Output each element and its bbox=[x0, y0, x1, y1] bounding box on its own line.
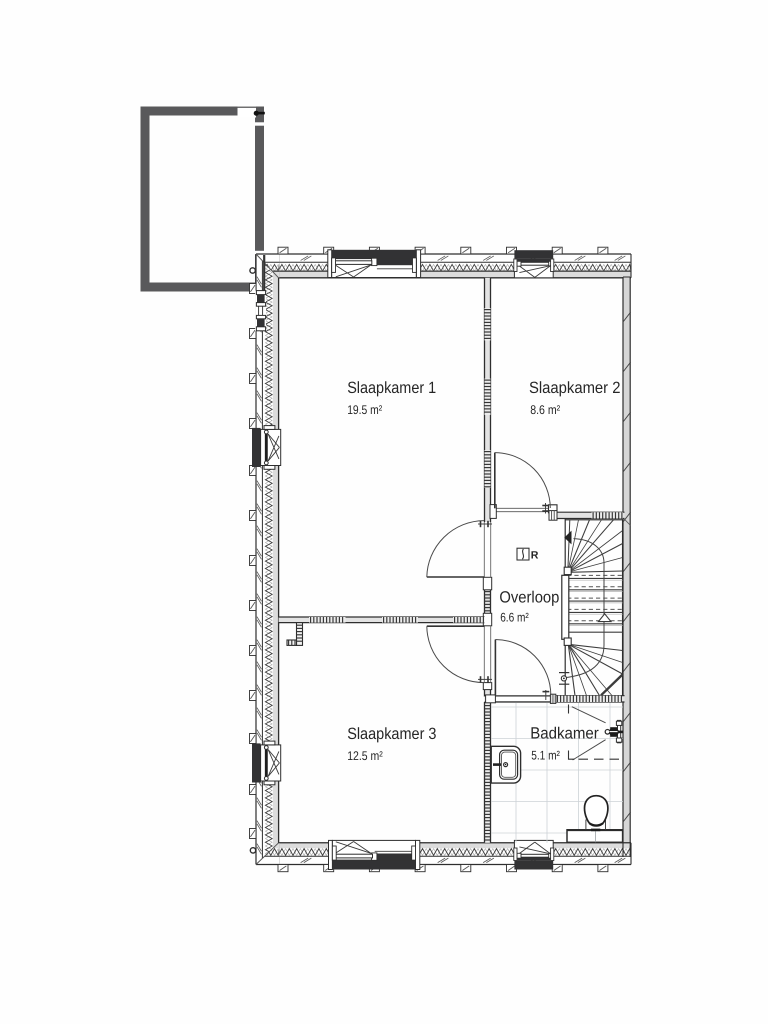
svg-text:12.5 m²: 12.5 m² bbox=[347, 749, 383, 763]
svg-text:Slaapkamer 3: Slaapkamer 3 bbox=[347, 725, 436, 743]
svg-text:Slaapkamer 1: Slaapkamer 1 bbox=[347, 379, 436, 397]
svg-text:Badkamer: Badkamer bbox=[530, 724, 599, 742]
svg-text:R: R bbox=[531, 549, 539, 561]
svg-text:Overloop: Overloop bbox=[499, 588, 559, 606]
svg-text:6.6 m²: 6.6 m² bbox=[500, 610, 529, 624]
svg-text:5.1 m²: 5.1 m² bbox=[531, 748, 560, 762]
svg-text:Slaapkamer 2: Slaapkamer 2 bbox=[529, 379, 621, 397]
svg-text:8.6 m²: 8.6 m² bbox=[530, 403, 560, 417]
svg-text:19.5 m²: 19.5 m² bbox=[347, 403, 382, 417]
